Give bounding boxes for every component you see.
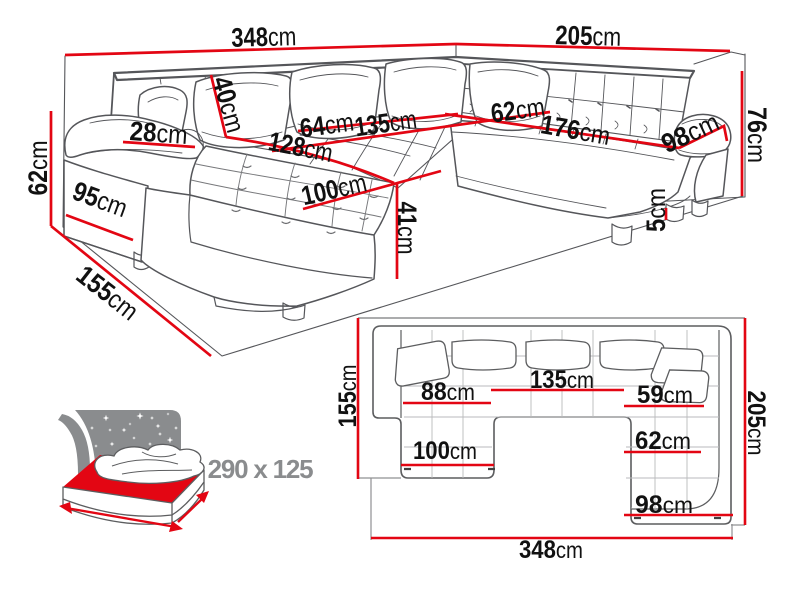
svg-text:155cm: 155cm bbox=[334, 365, 362, 428]
svg-text:98cm: 98cm bbox=[635, 491, 693, 519]
svg-text:59cm: 59cm bbox=[637, 381, 693, 409]
svg-text:62cm: 62cm bbox=[635, 427, 691, 455]
svg-text:28cm: 28cm bbox=[129, 116, 189, 150]
svg-text:155cm: 155cm bbox=[71, 260, 145, 327]
svg-text:100cm: 100cm bbox=[413, 437, 477, 465]
svg-text:88cm: 88cm bbox=[421, 378, 475, 406]
svg-text:348cm: 348cm bbox=[519, 536, 583, 564]
svg-text:205cm: 205cm bbox=[555, 20, 622, 52]
svg-text:62cm: 62cm bbox=[23, 141, 53, 196]
svg-text:76cm: 76cm bbox=[742, 107, 772, 163]
svg-text:205cm: 205cm bbox=[742, 391, 770, 456]
svg-text:290 x 125: 290 x 125 bbox=[208, 454, 314, 484]
svg-text:41cm: 41cm bbox=[392, 202, 422, 255]
svg-text:5cm: 5cm bbox=[641, 188, 671, 232]
svg-text:135cm: 135cm bbox=[530, 366, 594, 394]
svg-text:348cm: 348cm bbox=[231, 21, 297, 53]
